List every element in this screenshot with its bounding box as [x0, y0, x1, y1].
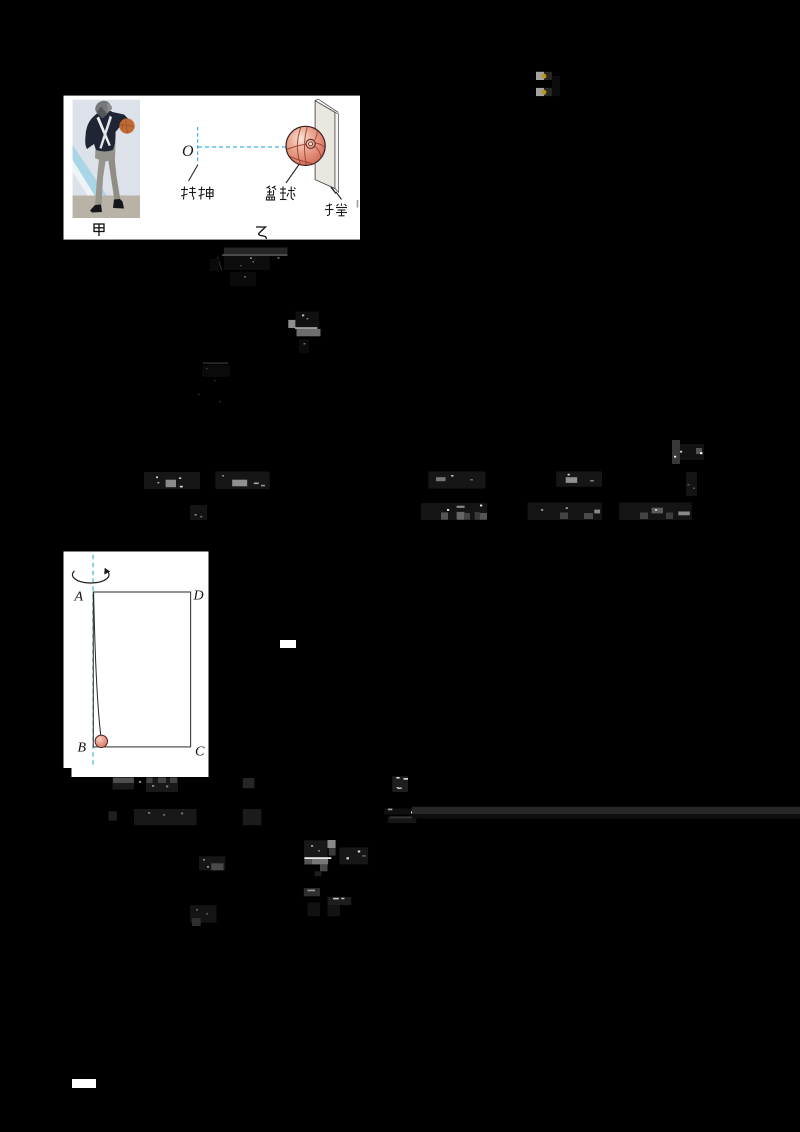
svg-text:C: C: [195, 745, 205, 760]
svg-text:D: D: [193, 589, 204, 604]
svg-text:O: O: [182, 143, 194, 160]
svg-text:B: B: [78, 741, 87, 756]
svg-text:A: A: [74, 590, 84, 605]
